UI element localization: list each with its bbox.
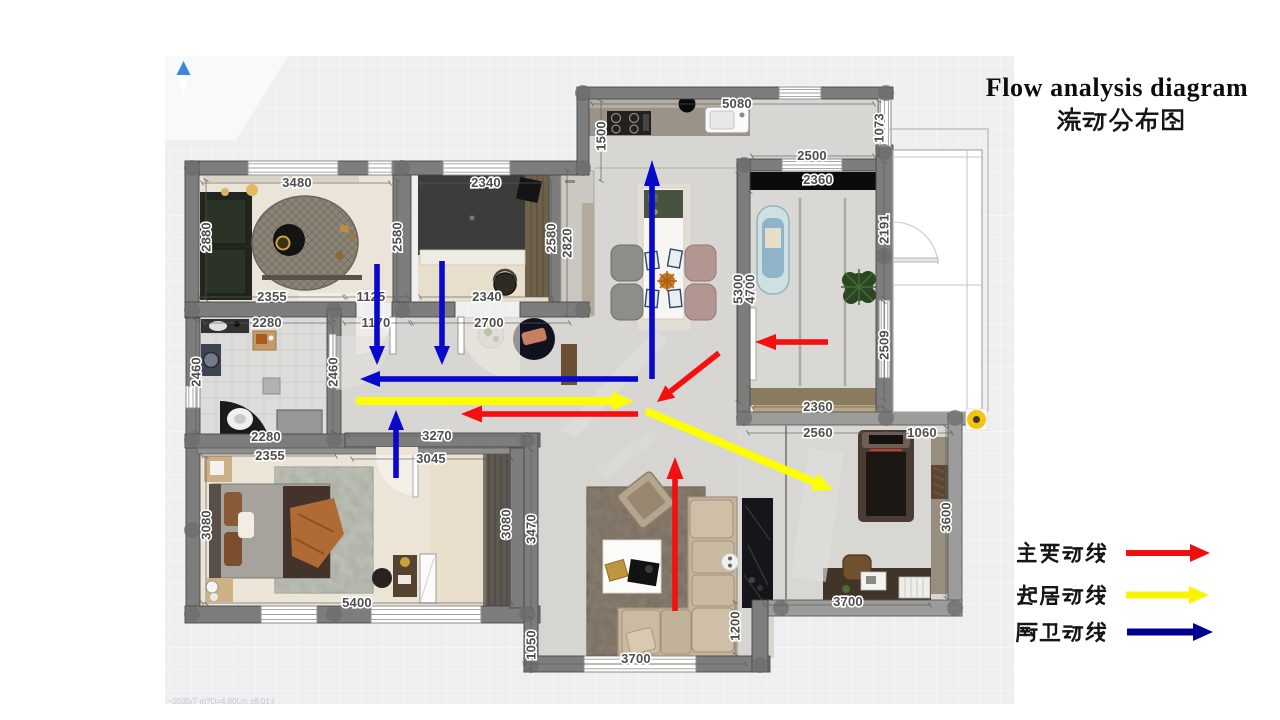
svg-text:2560: 2560 [803,425,833,440]
svg-text:2355: 2355 [257,289,287,304]
svg-text:1050: 1050 [524,630,539,660]
svg-text:1073: 1073 [872,113,887,143]
svg-text:3470: 3470 [524,514,539,544]
svg-text:2460: 2460 [189,357,204,387]
svg-text:2460: 2460 [326,357,341,387]
svg-text:2360: 2360 [803,172,833,187]
svg-text:3080: 3080 [199,510,214,540]
svg-text:5080: 5080 [722,96,752,111]
svg-text:~2035/7 m?D=4.80Lm ±8.01:t: ~2035/7 m?D=4.80Lm ±8.01:t [168,697,275,706]
svg-text:2355: 2355 [255,448,285,463]
svg-text:3480: 3480 [282,175,312,190]
svg-text:2280: 2280 [251,429,281,444]
svg-text:2580: 2580 [544,223,559,253]
svg-text:2580: 2580 [390,222,405,252]
svg-text:1125: 1125 [356,289,385,304]
svg-text:3600: 3600 [939,502,954,532]
svg-text:2340: 2340 [472,289,502,304]
svg-text:2191: 2191 [877,214,892,244]
svg-text:2500: 2500 [797,148,827,163]
svg-text:2280: 2280 [252,315,282,330]
svg-text:3270: 3270 [422,428,452,443]
svg-text:3700: 3700 [833,594,863,609]
svg-text:4700: 4700 [743,274,758,304]
svg-text:Flow analysis diagram: Flow analysis diagram [986,73,1249,102]
svg-text:3080: 3080 [499,509,514,539]
svg-text:1060: 1060 [907,425,937,440]
svg-text:3700: 3700 [621,651,651,666]
svg-text:2820: 2820 [560,228,575,258]
svg-text:2880: 2880 [199,222,214,252]
svg-text:2340: 2340 [471,175,501,190]
svg-text:1200: 1200 [728,611,743,641]
svg-text:2700: 2700 [474,315,504,330]
svg-text:1500: 1500 [594,121,609,151]
svg-text:2509: 2509 [877,330,892,360]
svg-text:2360: 2360 [803,399,833,414]
svg-text:5400: 5400 [342,595,372,610]
svg-text:3045: 3045 [416,451,446,466]
